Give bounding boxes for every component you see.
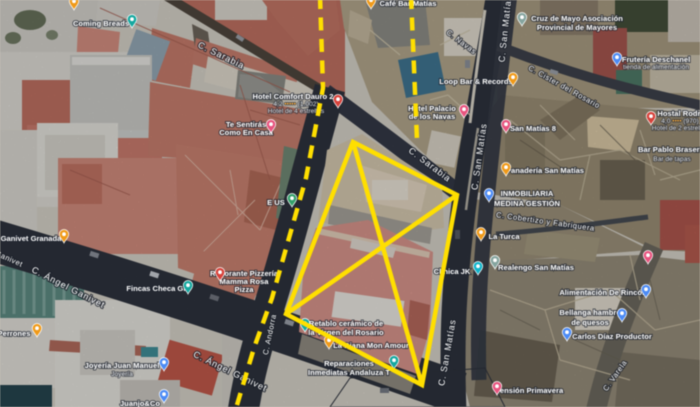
svg-text:Inmediatas Andaluza T: Inmediatas Andaluza T xyxy=(308,368,390,377)
svg-text:Alimentación De Rincón: Alimentación De Rincón xyxy=(559,288,647,297)
svg-text:MEDINA GESTIÓN: MEDINA GESTIÓN xyxy=(494,199,560,208)
svg-text:Pizza: Pizza xyxy=(235,285,255,294)
svg-text:Joyería: Joyería xyxy=(111,371,133,378)
svg-text:Pensión Primavera: Pensión Primavera xyxy=(495,386,564,395)
svg-text:4,2 ••••• (1.002): 4,2 ••••• (1.002) xyxy=(273,101,318,108)
svg-text:INMOBILIARIA: INMOBILIARIA xyxy=(501,189,554,198)
svg-text:de quesos: de quesos xyxy=(571,318,609,327)
svg-text:Hostal Rodri: Hostal Rodri xyxy=(657,109,700,118)
svg-text:Joyería Juan Manuel: Joyería Juan Manuel xyxy=(85,361,160,370)
svg-text:Provincial de Mayores: Provincial de Mayores xyxy=(537,23,617,32)
svg-text:Perrones: Perrones xyxy=(0,329,30,338)
svg-text:E US: E US xyxy=(267,198,285,207)
svg-text:Fincas Checa Gle: Fincas Checa Gle xyxy=(126,284,189,293)
svg-text:La Turca: La Turca xyxy=(488,232,520,241)
svg-text:Loop Bar & Records: Loop Bar & Records xyxy=(439,77,512,86)
svg-text:Panadería San Matías: Panadería San Matías xyxy=(506,166,584,175)
svg-text:San Matías 8: San Matías 8 xyxy=(510,124,556,133)
svg-text:Bar de tapas: Bar de tapas xyxy=(653,156,691,163)
svg-text:Juanjo&Co: Juanjo&Co xyxy=(120,399,160,407)
svg-text:Clínica JK: Clínica JK xyxy=(434,267,471,276)
svg-text:Ganivet Granada: Ganivet Granada xyxy=(1,234,63,243)
svg-text:Hotel de 2 estrellas: Hotel de 2 estrellas xyxy=(652,125,700,132)
svg-text:Como En Casa: Como En Casa xyxy=(219,128,273,137)
svg-text:Retablo cerámico de: Retablo cerámico de xyxy=(309,319,383,328)
svg-text:Reparaciones: Reparaciones xyxy=(324,359,374,368)
svg-text:Cruz de Mayo Asociación: Cruz de Mayo Asociación xyxy=(531,14,623,23)
svg-text:4,0 •••• (970): 4,0 •••• (970) xyxy=(661,118,698,125)
svg-text:Coming Breads: Coming Breads xyxy=(73,19,129,28)
svg-text:Bar Pablo Brasería: Bar Pablo Brasería xyxy=(638,145,700,154)
svg-text:Frutería Deschanel: Frutería Deschanel xyxy=(622,55,690,64)
svg-text:Carlos Díaz Productor: Carlos Díaz Productor xyxy=(572,332,652,341)
svg-text:tienda de alimentación: tienda de alimentación xyxy=(623,64,689,71)
svg-text:Bellanga hambre: Bellanga hambre xyxy=(559,308,620,317)
svg-text:Realengo San Matías: Realengo San Matías xyxy=(498,263,574,272)
svg-text:Café Bar Matías: Café Bar Matías xyxy=(380,0,437,8)
